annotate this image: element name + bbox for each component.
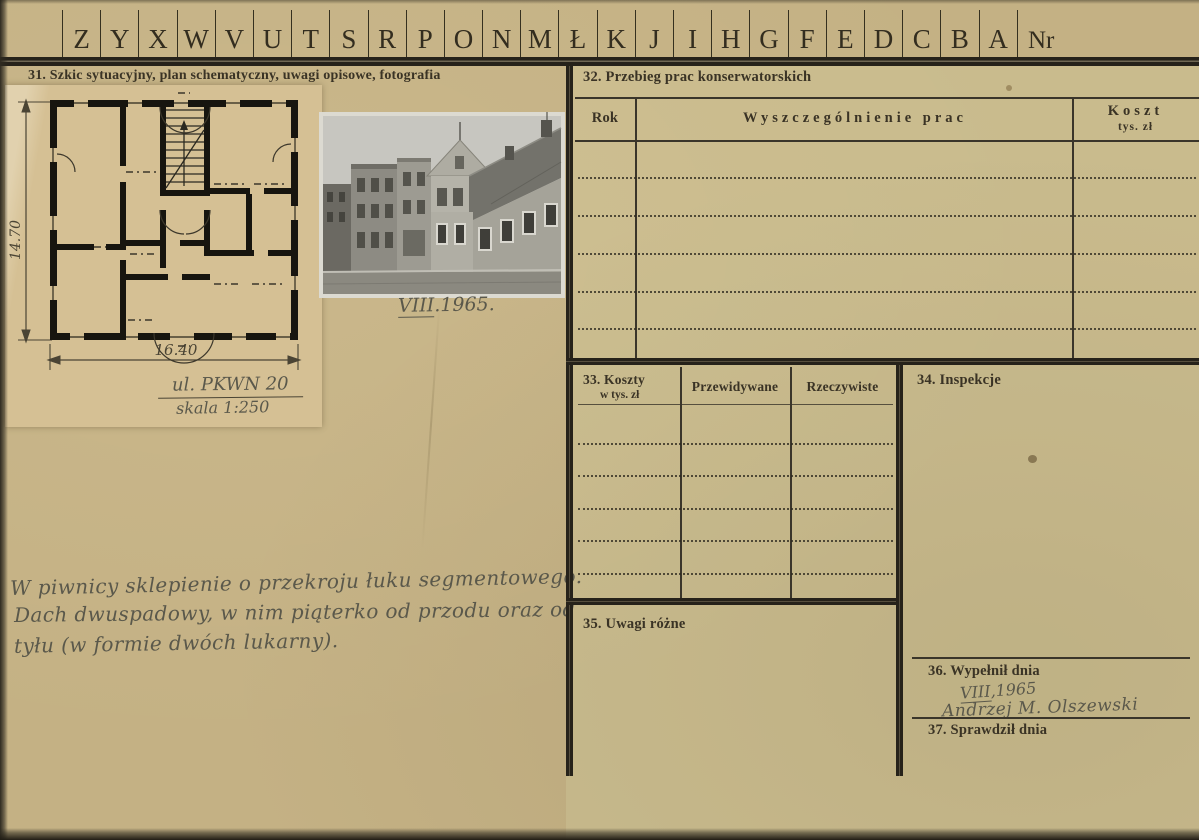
- scan-edge-left: [0, 0, 8, 840]
- t33-col-divider-2: [790, 367, 792, 598]
- paper-stain: [1006, 85, 1012, 91]
- t32-bottom-rule: [566, 358, 1199, 365]
- t32-empty-row-line: [578, 328, 1196, 330]
- t32-empty-row-line: [578, 177, 1196, 179]
- section37-title: 37. Sprawdził dnia: [928, 722, 1047, 739]
- t33-empty-row-line: [578, 508, 893, 510]
- t32-col-works: Wyszczególnienie prac: [645, 110, 1065, 127]
- section36-title: 36. Wypełnił dnia: [928, 663, 1040, 680]
- letter-cell: M: [520, 10, 558, 57]
- handwritten-note-line2: Dach dwuspadowy, w nim piąterko od przod…: [14, 597, 576, 627]
- letter-cell: T: [291, 10, 329, 57]
- plan-door-arcs: [57, 107, 291, 363]
- letter-cell: G: [749, 10, 787, 57]
- handwritten-note-line3: tyłu (w formie dwóch lukarny).: [14, 628, 339, 658]
- t32-header-rule: [575, 140, 1199, 142]
- letter-index-row: ZYXWVUTSRPONMŁKJIHGFEDCBANr: [62, 10, 1065, 57]
- letter-cell: R: [368, 10, 406, 57]
- header-rule: [0, 57, 1199, 66]
- t32-empty-row-line: [578, 253, 1196, 255]
- t32-col-divider-koszt: [1072, 97, 1074, 358]
- letter-cell: H: [711, 10, 749, 57]
- plan-window-lines: [50, 100, 298, 340]
- t33-empty-row-line: [578, 475, 893, 477]
- section34-title: 34. Inspekcje: [917, 372, 1001, 389]
- letter-cell: B: [940, 10, 978, 57]
- letter-cell: S: [329, 10, 367, 57]
- photo-caption: VIII.1965.: [398, 293, 495, 317]
- t33-empty-row-line: [578, 573, 893, 575]
- photo-caption-year: .1965.: [434, 293, 495, 316]
- section33-subtitle: w tys. zł: [600, 389, 639, 401]
- scan-edge-bottom: [0, 828, 1199, 840]
- floor-plan-drawing: 14.70 16.40: [8, 88, 320, 380]
- t33-bottom-rule: [566, 598, 903, 605]
- letter-cell: P: [406, 10, 444, 57]
- letter-cell: Ł: [558, 10, 596, 57]
- plan-scale-label: skala 1:250: [176, 397, 270, 418]
- letter-cell: K: [597, 10, 635, 57]
- letter-cell: J: [635, 10, 673, 57]
- letter-cell: N: [482, 10, 520, 57]
- photo-scene: [323, 112, 561, 294]
- plan-dimension-bottom: 16.40: [48, 341, 300, 370]
- letter-cell: X: [138, 10, 176, 57]
- s37-top-rule: [912, 717, 1190, 719]
- letter-cell: Z: [62, 10, 100, 57]
- t33-header-underline: [578, 404, 893, 405]
- letter-cell: Y: [100, 10, 138, 57]
- letter-cell: E: [826, 10, 864, 57]
- building-photo: [319, 112, 565, 298]
- letter-cell: W: [177, 10, 215, 57]
- letter-cell: I: [673, 10, 711, 57]
- t33-col-expected: Przewidywane: [682, 379, 788, 395]
- plan-staircase: [166, 110, 204, 188]
- conservation-record-card: ZYXWVUTSRPONMŁKJIHGFEDCBANr 31. Szkic sy…: [0, 0, 1199, 840]
- s36-date-year: ,1965: [990, 678, 1037, 700]
- t33-empty-row-line: [578, 443, 893, 445]
- plan-dimension-left: 14.70: [8, 100, 52, 342]
- main-column-divider: [566, 66, 573, 776]
- t32-top-rule: [575, 97, 1199, 99]
- t32-empty-row-line: [578, 215, 1196, 217]
- t32-empty-row-line: [578, 291, 1196, 293]
- handwritten-note-line1: W piwnicy sklepienie o przekroju łuku se…: [10, 564, 583, 600]
- nr-cell: Nr: [1017, 10, 1065, 57]
- section35-title: 35. Uwagi różne: [583, 616, 685, 633]
- letter-cell: V: [215, 10, 253, 57]
- letter-cell: U: [253, 10, 291, 57]
- t33-col-actual: Rzeczywiste: [792, 379, 893, 395]
- plan-width-label: 16.40: [155, 341, 198, 359]
- right-subcolumn-divider: [896, 365, 903, 776]
- plan-walls: [50, 100, 298, 340]
- letter-cell: C: [902, 10, 940, 57]
- plan-address-label: ul. PKWN 20: [158, 373, 303, 399]
- t33-empty-row-line: [578, 540, 893, 542]
- section32-title: 32. Przebieg prac konserwatorskich: [583, 69, 811, 86]
- t32-col-cost: Koszt: [1078, 103, 1193, 120]
- paper-crease: [421, 300, 440, 550]
- photo-caption-month: VIII: [398, 294, 435, 318]
- s36-top-rule: [912, 657, 1190, 659]
- letter-cell: D: [864, 10, 902, 57]
- letter-cell: A: [979, 10, 1017, 57]
- section33-title: 33. Koszty: [583, 372, 645, 388]
- letter-cell: F: [788, 10, 826, 57]
- t33-col-divider-1: [680, 367, 682, 598]
- letter-cell: O: [444, 10, 482, 57]
- t32-col-cost-sub: tys. zł: [1078, 121, 1193, 133]
- t32-col-divider-rok: [635, 97, 637, 358]
- t32-col-rok: Rok: [575, 110, 635, 127]
- scan-edge-top: [0, 0, 1199, 4]
- paper-stain: [1028, 455, 1037, 463]
- section31-title: 31. Szkic sytuacyjny, plan schematyczny,…: [28, 68, 441, 84]
- plan-height-label: 14.70: [8, 220, 24, 260]
